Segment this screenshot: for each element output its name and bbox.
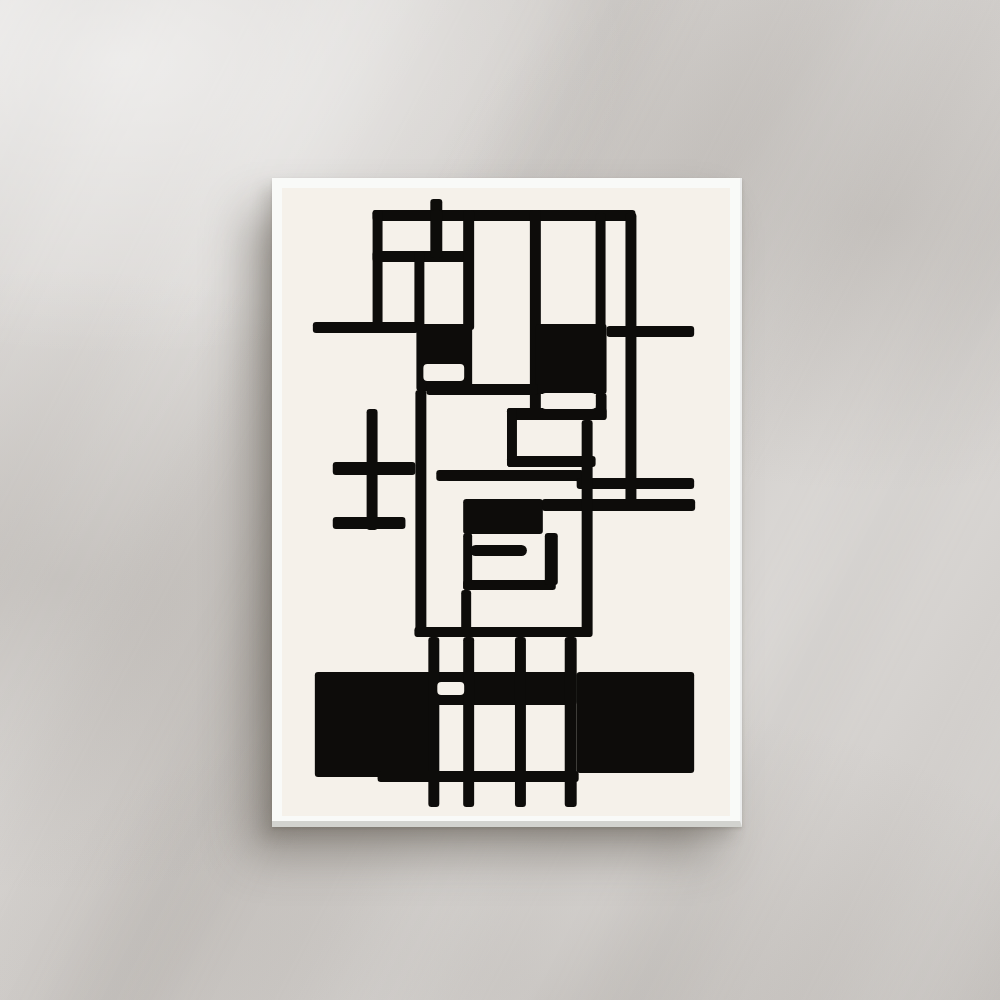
- artwork-black-shape: [333, 517, 406, 529]
- abstract-line-artwork: [282, 188, 730, 816]
- artwork-black-shape: [596, 213, 606, 328]
- artwork-black-shape: [507, 408, 607, 420]
- artwork-black-shape: [313, 322, 419, 333]
- artwork-black-shape: [415, 390, 426, 637]
- artwork-black-shape: [607, 326, 695, 337]
- artwork-black-shape: [577, 478, 694, 489]
- artwork-black-shape: [333, 462, 416, 475]
- artwork-black-shape: [378, 771, 579, 782]
- artwork-black-shape: [577, 672, 694, 773]
- artwork-black-shape: [625, 213, 636, 509]
- artwork-black-shape: [315, 672, 436, 777]
- artwork-black-shape: [463, 499, 543, 534]
- artwork-black-shape: [463, 210, 474, 330]
- scene: { "scene": { "description": "White frame…: [0, 0, 1000, 1000]
- artwork-cream-notch: [437, 682, 464, 695]
- poster-paper: [282, 188, 730, 816]
- artwork-black-shape: [582, 420, 593, 637]
- artwork-cream-notch: [542, 393, 596, 409]
- artwork-black-shape: [536, 324, 607, 394]
- artwork-black-shape: [545, 533, 558, 585]
- artwork-black-shape: [463, 580, 556, 590]
- artwork-cream-notch: [423, 364, 464, 381]
- poster-frame: [272, 178, 742, 827]
- artwork-black-shape: [430, 210, 442, 258]
- artwork-black-shape: [426, 384, 538, 395]
- artwork-black-shape: [436, 470, 583, 481]
- artwork-black-shape: [373, 210, 383, 332]
- artwork-black-shape: [542, 499, 695, 511]
- wall: [0, 0, 1000, 1000]
- artwork-black-shape: [414, 627, 591, 637]
- artwork-rounded-stub: [470, 545, 527, 556]
- artwork-black-shape: [414, 251, 424, 331]
